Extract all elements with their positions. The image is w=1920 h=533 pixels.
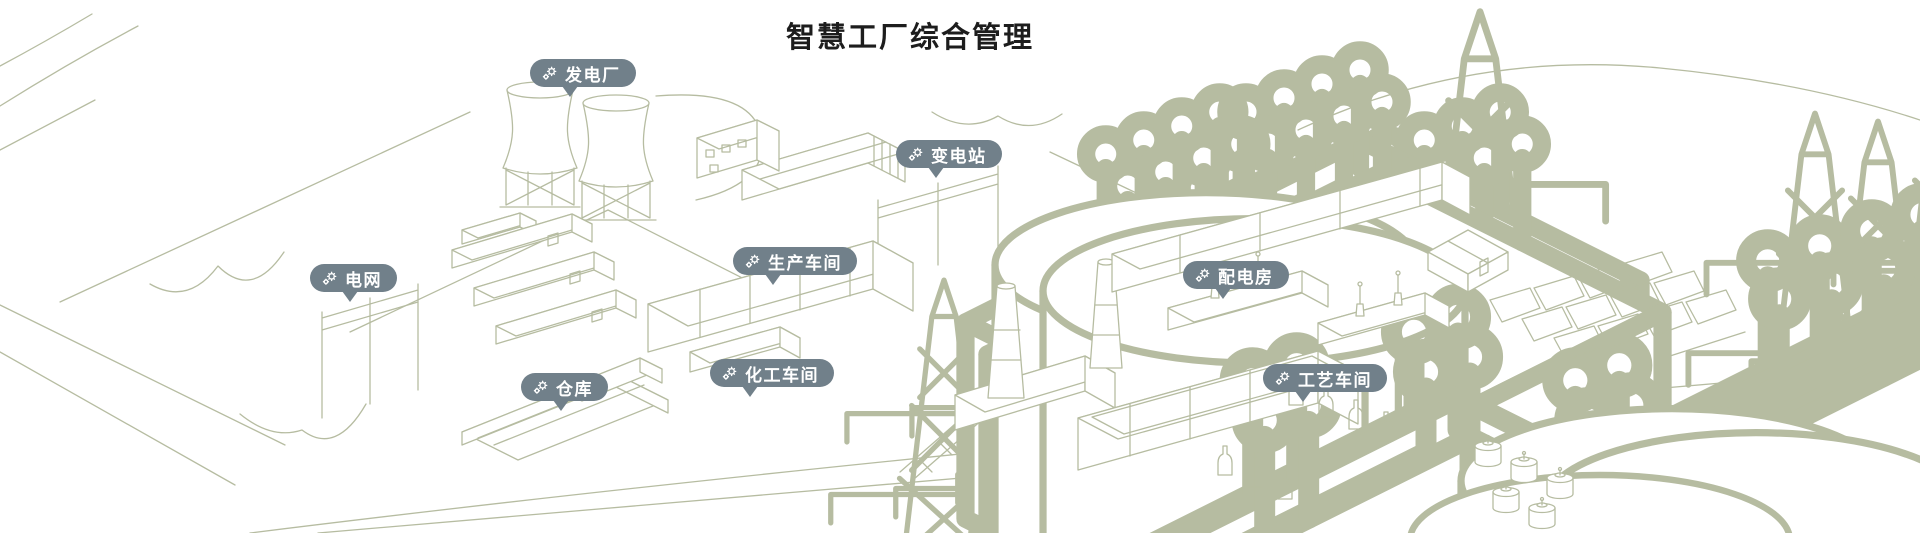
gears-icon (1274, 370, 1291, 387)
gears-icon (1194, 267, 1211, 284)
gears-icon (541, 65, 558, 82)
smart-factory-dashboard: 智慧工厂综合管理 发电厂 变电站 电网 生产车间 配电房 仓库 化工车间 工艺车… (0, 0, 1920, 533)
central-factory-hall (697, 120, 905, 200)
badge-power-plant[interactable]: 发电厂 (530, 59, 636, 87)
badge-label: 生产车间 (768, 249, 842, 274)
badge-production-workshop[interactable]: 生产车间 (733, 247, 857, 275)
page-title: 智慧工厂综合管理 (760, 14, 1060, 56)
badge-chemical-workshop[interactable]: 化工车间 (710, 359, 834, 387)
badge-distribution-room[interactable]: 配电房 (1183, 261, 1289, 289)
gears-icon (721, 365, 738, 382)
gears-icon (321, 270, 338, 287)
factory-illustration (0, 0, 1920, 533)
badge-label: 仓库 (556, 375, 593, 400)
badge-process-workshop[interactable]: 工艺车间 (1263, 364, 1387, 392)
badge-substation[interactable]: 变电站 (896, 140, 1002, 168)
gears-icon (532, 379, 549, 396)
badge-label: 电网 (345, 266, 382, 291)
badge-warehouse[interactable]: 仓库 (521, 373, 608, 401)
badge-label: 变电站 (931, 142, 987, 167)
gears-icon (907, 146, 924, 163)
badge-label: 配电房 (1218, 263, 1274, 288)
badge-label: 化工车间 (745, 361, 819, 386)
badge-label: 工艺车间 (1298, 366, 1372, 391)
badge-label: 发电厂 (565, 61, 621, 86)
gears-icon (744, 253, 761, 270)
badge-power-grid[interactable]: 电网 (310, 264, 397, 292)
